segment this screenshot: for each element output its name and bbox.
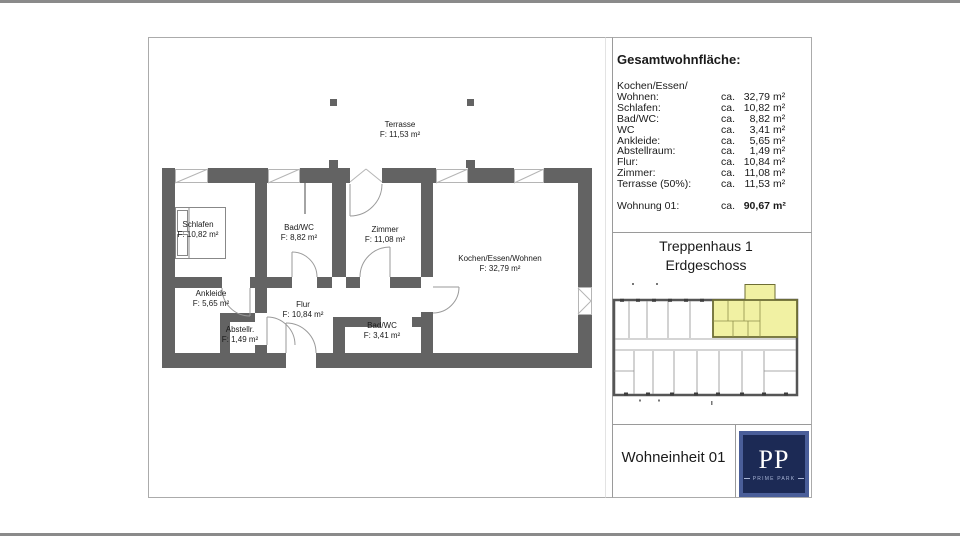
room-area-ankleide: F: 5,65 m² [193, 299, 230, 308]
room-label-badwc: Bad/WC [284, 223, 314, 232]
room-label-zimmer: Zimmer [371, 225, 398, 234]
area-row: WCca.3,41m² [617, 125, 789, 136]
area-table: Kochen/Essen/ Wohnen:ca.32,79m² Schlafen… [617, 81, 789, 190]
room-area-schlafen: F: 10,82 m² [178, 230, 219, 239]
floor-plan-drawing: Terrasse F: 11,53 m² Schlafen F: 10,82 m… [0, 0, 960, 536]
room-area-abstellraum: F: 1,49 m² [222, 335, 259, 344]
total-area-row: Wohnung 01: ca. 90,67 m² [617, 200, 789, 212]
room-area-badwc2: F: 3,41 m² [364, 331, 401, 340]
staircase-name: Treppenhaus 1 [612, 237, 800, 256]
room-label-schlafen: Schlafen [182, 220, 213, 229]
room-area-flur: F: 10,84 m² [283, 310, 324, 319]
total-area-title: Gesamtwohnfläche: [617, 52, 741, 67]
terrace-post-right [467, 99, 474, 106]
prime-park-logo: PP PRIME PARK [739, 431, 809, 497]
room-label-kochen: Kochen/Essen/Wohnen [458, 254, 541, 263]
area-row: Bad/WC:ca.8,82m² [617, 114, 789, 125]
room-label-flur: Flur [296, 300, 310, 309]
room-area-badwc: F: 8,82 m² [281, 233, 318, 242]
logo-initials: PP [759, 447, 790, 473]
room-area-kochen: F: 32,79 m² [480, 264, 521, 273]
floor-plan-sheet: Terrasse F: 11,53 m² Schlafen F: 10,82 m… [0, 0, 960, 536]
room-area-zimmer: F: 11,08 m² [365, 235, 406, 244]
unit-label: Wohneinheit 01 [612, 449, 735, 466]
room-label-badwc2: Bad/WC [367, 321, 397, 330]
terrace-post-left [330, 99, 337, 106]
room-area-terrasse: F: 11,53 m² [380, 130, 421, 139]
overview-mini-plan [614, 283, 797, 405]
room-label-abstellraum: Abstellr. [226, 325, 254, 334]
room-label-terrasse: Terrasse [385, 120, 416, 129]
logo-subtitle: PRIME PARK [753, 476, 795, 482]
floor-name: Erdgeschoss [612, 256, 800, 275]
room-label-ankleide: Ankleide [196, 289, 227, 298]
area-row: Terrasse (50%):ca.11,53m² [617, 179, 789, 190]
staircase-heading: Treppenhaus 1 Erdgeschoss [612, 237, 800, 275]
